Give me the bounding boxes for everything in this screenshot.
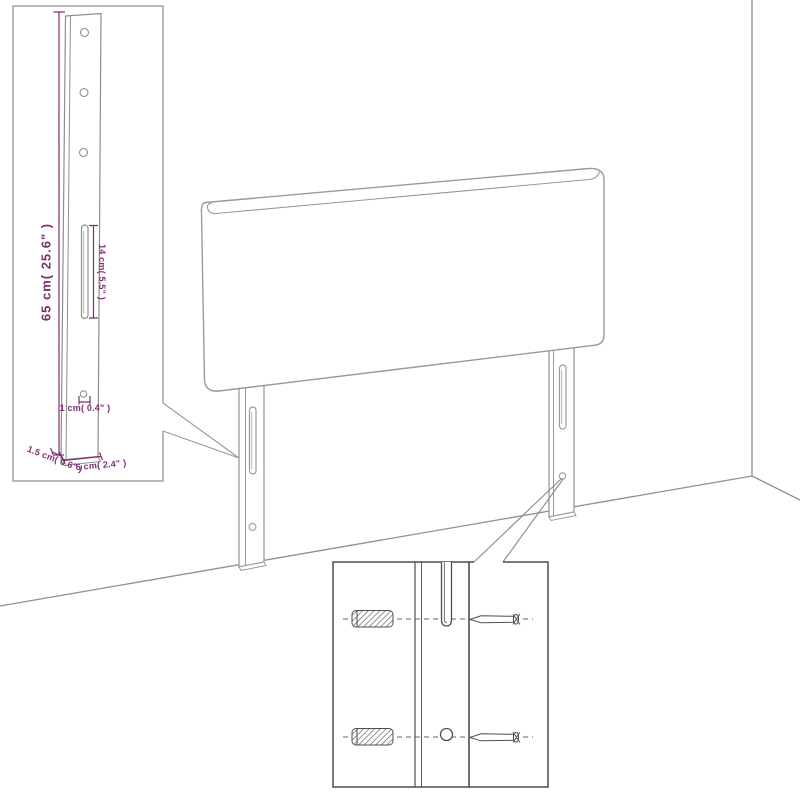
inset-leg-drawing [61, 14, 101, 466]
diagram-line-art [0, 0, 800, 800]
dimension-label-hole-diameter: 1 cm( 0.4" ) [60, 403, 111, 413]
headboard-left-leg [239, 376, 266, 571]
dimension-label-leg-height: 65 cm( 25.6" ) [39, 223, 54, 321]
right-leg-hole [559, 473, 565, 479]
assembly-diagram: 65 cm( 25.6" ) 14 cm( 5.5" ) 1 cm( 0.4" … [0, 0, 800, 800]
dimension-label-slot-length: 14 cm( 5.5" ) [97, 244, 107, 300]
left-leg-hole [249, 524, 256, 531]
inset-leg-callout-lines [163, 403, 239, 458]
inset-post-small-hole [80, 391, 86, 397]
wall-plug-icon-bottom [352, 729, 393, 746]
inset-slot-detail [442, 562, 452, 626]
inset-post-slot [82, 225, 89, 319]
inset-hardware-detail [333, 562, 548, 787]
inset-hardware-border [333, 562, 548, 787]
headboard-panel [201, 168, 604, 391]
inset-hole-detail [441, 729, 453, 741]
left-leg-slot [250, 407, 257, 474]
floor-line-right [752, 476, 800, 500]
wall-plug-icon-top [352, 611, 393, 628]
right-leg-slot [560, 365, 567, 429]
